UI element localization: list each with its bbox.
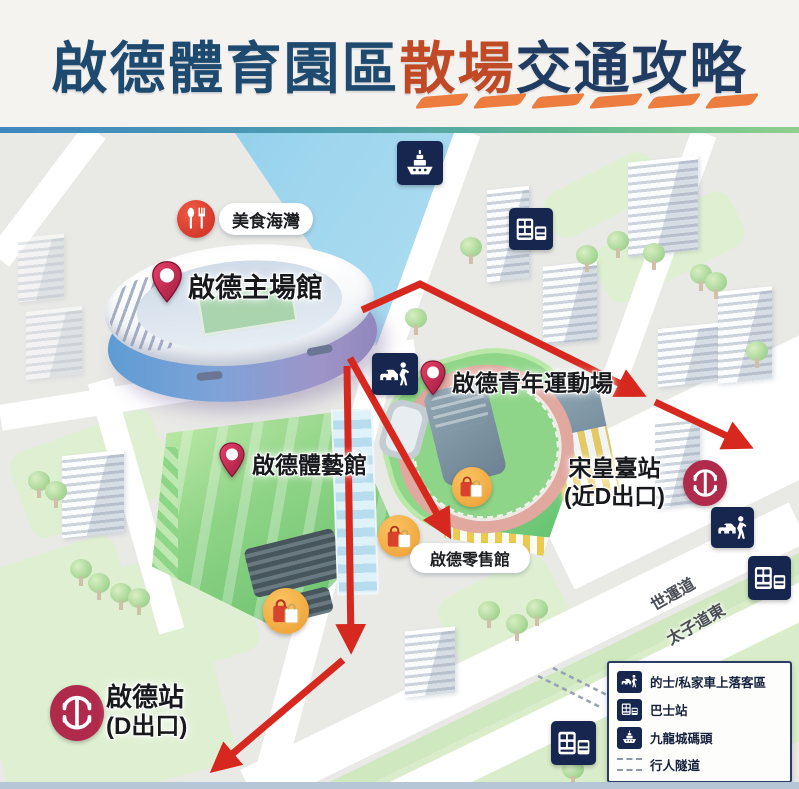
arena-label: 啟德體藝館 bbox=[252, 446, 367, 480]
kai-tak-sports-park-transport-infographic: { "title": {"prefix": "啟德體育園區", "highlig… bbox=[0, 0, 799, 789]
food-bay-label: 美食海灣 bbox=[219, 203, 313, 235]
tree bbox=[576, 245, 598, 272]
building bbox=[26, 306, 82, 380]
legend-label: 的士/私家車上落客區 bbox=[650, 672, 766, 691]
youth-sports-ground-label: 啟德青年運動場 bbox=[452, 364, 613, 398]
legend-label: 巴士站 bbox=[650, 700, 688, 719]
legend-row: 巴士站 bbox=[617, 699, 782, 721]
building bbox=[405, 626, 455, 697]
brush-stroke bbox=[414, 93, 469, 109]
dining-icon bbox=[177, 200, 215, 238]
brush-stroke bbox=[530, 93, 585, 109]
bus-stop-icon bbox=[617, 699, 642, 721]
sung-wong-toi-exit: (近D出口) bbox=[564, 483, 665, 511]
tree bbox=[526, 599, 548, 626]
main-stadium-label: 啟德主場館 bbox=[188, 266, 323, 305]
tree bbox=[506, 614, 528, 641]
brush-stroke bbox=[588, 93, 643, 109]
brush-stroke bbox=[646, 93, 701, 109]
shopping-bag-icon bbox=[263, 588, 309, 634]
tree bbox=[607, 231, 629, 258]
main-stadium-illustration bbox=[100, 234, 383, 413]
title-suffix: 交通攻略 bbox=[516, 37, 748, 100]
tree bbox=[460, 237, 482, 264]
kai-tak-station-exit: (D出口) bbox=[106, 713, 187, 742]
title-highlight: 散場 bbox=[400, 37, 516, 100]
tree bbox=[705, 272, 727, 299]
location-pin-icon bbox=[216, 439, 248, 481]
title-underline-strokes bbox=[420, 95, 754, 107]
title-prefix: 啟德體育園區 bbox=[52, 37, 400, 100]
building bbox=[718, 286, 772, 384]
location-pin-icon bbox=[417, 357, 449, 399]
taxi-dropoff-icon bbox=[617, 671, 642, 693]
header: 啟德體育園區散場交通攻略 bbox=[0, 0, 799, 127]
tree bbox=[405, 308, 427, 335]
building bbox=[628, 155, 698, 256]
location-pin-icon bbox=[148, 258, 186, 306]
legend-label: 九龍城碼頭 bbox=[650, 728, 713, 747]
tree bbox=[478, 601, 500, 628]
kowloon-city-pier-icon bbox=[617, 727, 642, 749]
building bbox=[62, 450, 124, 539]
gradient-divider bbox=[0, 127, 799, 133]
retail-hall-label: 啟德零售館 bbox=[410, 543, 530, 573]
retail-hall-text: 啟德零售館 bbox=[430, 546, 510, 570]
building bbox=[18, 234, 64, 303]
kai-tak-station-label: 啟德站 (D出口) bbox=[106, 682, 187, 742]
legend-label: 行人隧道 bbox=[650, 755, 700, 774]
bus-stop-icon bbox=[748, 556, 791, 600]
brush-stroke bbox=[472, 93, 527, 109]
bottom-water-strip bbox=[0, 782, 799, 789]
taxi-dropoff-icon bbox=[372, 353, 418, 395]
tree bbox=[643, 243, 665, 270]
mtr-logo-icon bbox=[683, 460, 727, 506]
brush-stroke bbox=[704, 93, 759, 109]
glass-tower-building bbox=[331, 408, 379, 595]
kowloon-city-pier-icon bbox=[397, 141, 443, 185]
mtr-logo-icon bbox=[50, 685, 104, 741]
map-canvas: 美食海灣 啟德主場館 啟德青年運動場 啟德體藝館 啟德零售館 宋皇臺站 (近D出… bbox=[0, 133, 799, 789]
building bbox=[543, 261, 597, 345]
tree bbox=[88, 573, 110, 600]
legend-row: 行人隧道 bbox=[617, 755, 782, 774]
legend-row: 的士/私家車上落客區 bbox=[617, 671, 782, 693]
page-title: 啟德體育園區散場交通攻略 bbox=[0, 24, 799, 105]
sung-wong-toi-name: 宋皇臺站 bbox=[564, 455, 665, 483]
taxi-dropoff-icon bbox=[711, 507, 754, 548]
kai-tak-station-name: 啟德站 bbox=[106, 682, 187, 713]
bus-stop-icon bbox=[509, 208, 553, 250]
bus-stop-icon bbox=[551, 721, 596, 765]
building bbox=[658, 323, 718, 387]
shopping-bag-icon bbox=[452, 467, 492, 507]
tree bbox=[45, 481, 67, 508]
legend-row: 九龍城碼頭 bbox=[617, 727, 782, 749]
tree bbox=[746, 341, 768, 368]
map-legend: 的士/私家車上落客區 巴士站 九龍城碼頭 行人隧道 bbox=[607, 661, 792, 783]
pedestrian-tunnel-icon bbox=[617, 758, 642, 771]
tree bbox=[128, 588, 150, 615]
food-bay-text: 美食海灣 bbox=[232, 207, 300, 232]
sung-wong-toi-label: 宋皇臺站 (近D出口) bbox=[564, 455, 665, 510]
